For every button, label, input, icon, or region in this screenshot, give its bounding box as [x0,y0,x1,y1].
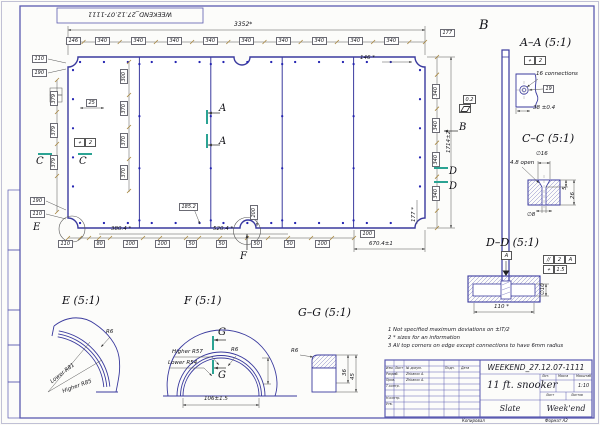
titleblock-list: Лист [395,367,403,370]
cc-dim-open: 4.8 open [510,161,534,167]
dim-box: 190 [32,69,47,77]
titleblock-data: Дата [461,367,469,370]
dim-box: 340 [312,37,327,45]
dim-3804: 380.4 * [111,227,131,233]
detail-letter-e: E [33,222,40,233]
dim-box: 50 [284,240,295,248]
dim-177-ref: 177 * [412,207,418,222]
detail-e-title: E (5:1) [62,294,100,307]
section-dd-title: D–D (5:1) [486,236,539,249]
position-tolerance-frame: ⌖ 2 [74,138,96,147]
dim-box: 340 [276,37,291,45]
dd-dim-d10: ∅10 [541,283,547,295]
aa-position-frame: ⌖ 2 [524,56,546,65]
dim-box: 100 [155,240,170,248]
drawing-sheet: WEEKEND_27.12.07-1111 3352* 146 340 340 … [0,0,600,425]
titleblock-sheets-header: Листов [571,394,583,397]
gg-dim-36: 36 [343,369,349,376]
note-1: 1 Not specified maximum deviations on ±I… [388,327,510,333]
titleblock-company: Week'end [541,404,591,413]
dd-position-frame: ⌖ 1.5 [543,265,567,274]
cc-dim-d8: ∅8 [527,213,535,219]
dd-datum-flag: A [501,251,512,260]
f-higher-radius: Higher R57 [172,350,203,356]
position-icon: ⌖ [524,56,535,65]
flatness-icon [459,104,471,113]
titleblock-row-razrab: Разраб. [386,373,399,376]
dim-box: 340 [432,84,440,99]
dim-overall-height: 1714±2 [447,131,453,153]
section-letter-d: D [449,181,457,192]
dim-box: 50 [216,240,227,248]
section-letter-d: D [449,166,457,177]
dim-box: 340 [348,37,363,45]
dim-box: 200 [250,205,258,220]
dim-box: 340 [432,118,440,133]
titleblock-izm: Изм. [386,367,394,370]
titleblock-docnum: № докум. [406,367,422,370]
dim-146-ref: 146 * [360,56,375,62]
dim-box: 300 [120,69,128,84]
dim-box: 370 [120,165,128,180]
titleblock-row-utv: Утв. [386,403,393,406]
dim-box: 340 [167,37,182,45]
dim-box: 370 [120,133,128,148]
cc-dim-5: 5 [563,187,569,191]
gg-r6: R6 [291,349,298,355]
dim-overall-width: 3352* [234,22,252,28]
position-icon: ⌖ [543,265,554,274]
dim-box: 340 [203,37,218,45]
dim-box: 100 [123,240,138,248]
dim-box: 340 [239,37,254,45]
dim-box: 379 [50,123,58,138]
aa-dim-38: 38 ±0.4 [533,106,555,112]
detail-f-title: F (5:1) [184,294,221,307]
detail-letter-f: F [240,251,247,262]
dim-box: 19 [543,85,554,93]
dim-box: 100 [315,240,330,248]
section-letter-g: G [218,370,226,381]
dim-box: 340 [131,37,146,45]
section-aa-title: A–A (5:1) [520,36,571,49]
dim-box: 340 [384,37,399,45]
flatness-symbol-frame [459,104,471,113]
dim-box: 340 [432,152,440,167]
aa-connections-note: 16 connections [536,72,578,78]
dim-box: 110 [32,55,47,63]
dim-box: 50 [251,240,262,248]
dim-box: 370 [120,101,128,116]
e-r6: R6 [106,330,113,336]
section-letter-b: B [459,122,466,133]
dim-box: 50 [186,240,197,248]
titleblock-doc-number: WEEKEND_27.12.07-1111 [482,363,590,372]
copied-label: Копировал [462,419,485,423]
cc-dim-26: 26 [571,192,577,199]
view-b-label: B [479,18,489,33]
dim-box: 80 [94,240,105,248]
titleblock-material: Slate [482,404,538,413]
dim-box: 110 [58,240,73,248]
section-letter-a: A [219,136,226,147]
drawing-linework [0,0,600,425]
f-dim-106: 106±1.5 [204,397,228,403]
flatness-value-frame: 0.2 [463,95,476,104]
position-icon: ⌖ [74,138,85,147]
top-stamp: WEEKEND_27.12.07-1111 [60,11,200,18]
titleblock-part-title: 11 ft. snooker [487,380,557,391]
parallel-icon: // [543,255,554,264]
dim-5204: 520.4 * [213,227,233,233]
titleblock-row-tkontr: Т.контр. [386,385,400,388]
dim-box: 340 [95,37,110,45]
dim-box: 146 [66,37,81,45]
dd-parallelism-frame: // 2 A [543,255,576,264]
dim-6704: 670.4±1 [369,242,393,248]
dim-box: 379 [50,155,58,170]
titleblock-lit-header: Лит. [542,375,549,378]
dim-box: 379 [50,91,58,106]
note-3: 3 All top corners on edge except connect… [388,343,563,349]
titleblock-sheet-header: Лист [546,394,554,397]
dim-box: 100 [360,230,375,238]
f-lower-radius: Lower R54 [168,361,197,367]
section-letter-c: C [36,156,44,167]
dim-box: 190 [30,197,45,205]
section-gg-title: G–G (5:1) [298,306,351,319]
format-label: Формат А2 [545,419,568,423]
titleblock-name-2: Zhbanov A. [406,379,424,382]
titleblock-row-prov: Пров. [386,379,395,382]
dim-box: 25 [86,99,97,107]
section-letter-a: A [219,103,226,114]
titleblock-podp: Подп. [445,367,455,370]
gg-dim-45: 45 [351,373,357,380]
titleblock-name-1: Zhbanov A. [406,373,424,376]
cc-dim-d16: ∅16 [536,152,548,158]
dim-box: 185.2 [179,203,198,211]
section-letter-g: G [218,327,226,338]
titleblock-scale-value: 1:10 [578,384,589,389]
dim-box: 177 [440,29,455,37]
dim-box: 340 [432,186,440,201]
section-cc-title: C–C (5:1) [522,132,574,145]
dim-box: 110 [30,210,45,218]
titleblock-row-nkontr: Н.контр. [386,397,400,400]
dd-dim-110: 110 * [494,305,509,311]
f-r6: R6 [231,348,238,354]
titleblock-scale-header: Масштаб [576,375,591,378]
note-2: 2 * sizes for an information [388,335,460,341]
titleblock-mass-header: Масса [558,375,568,378]
section-letter-c: C [79,156,87,167]
